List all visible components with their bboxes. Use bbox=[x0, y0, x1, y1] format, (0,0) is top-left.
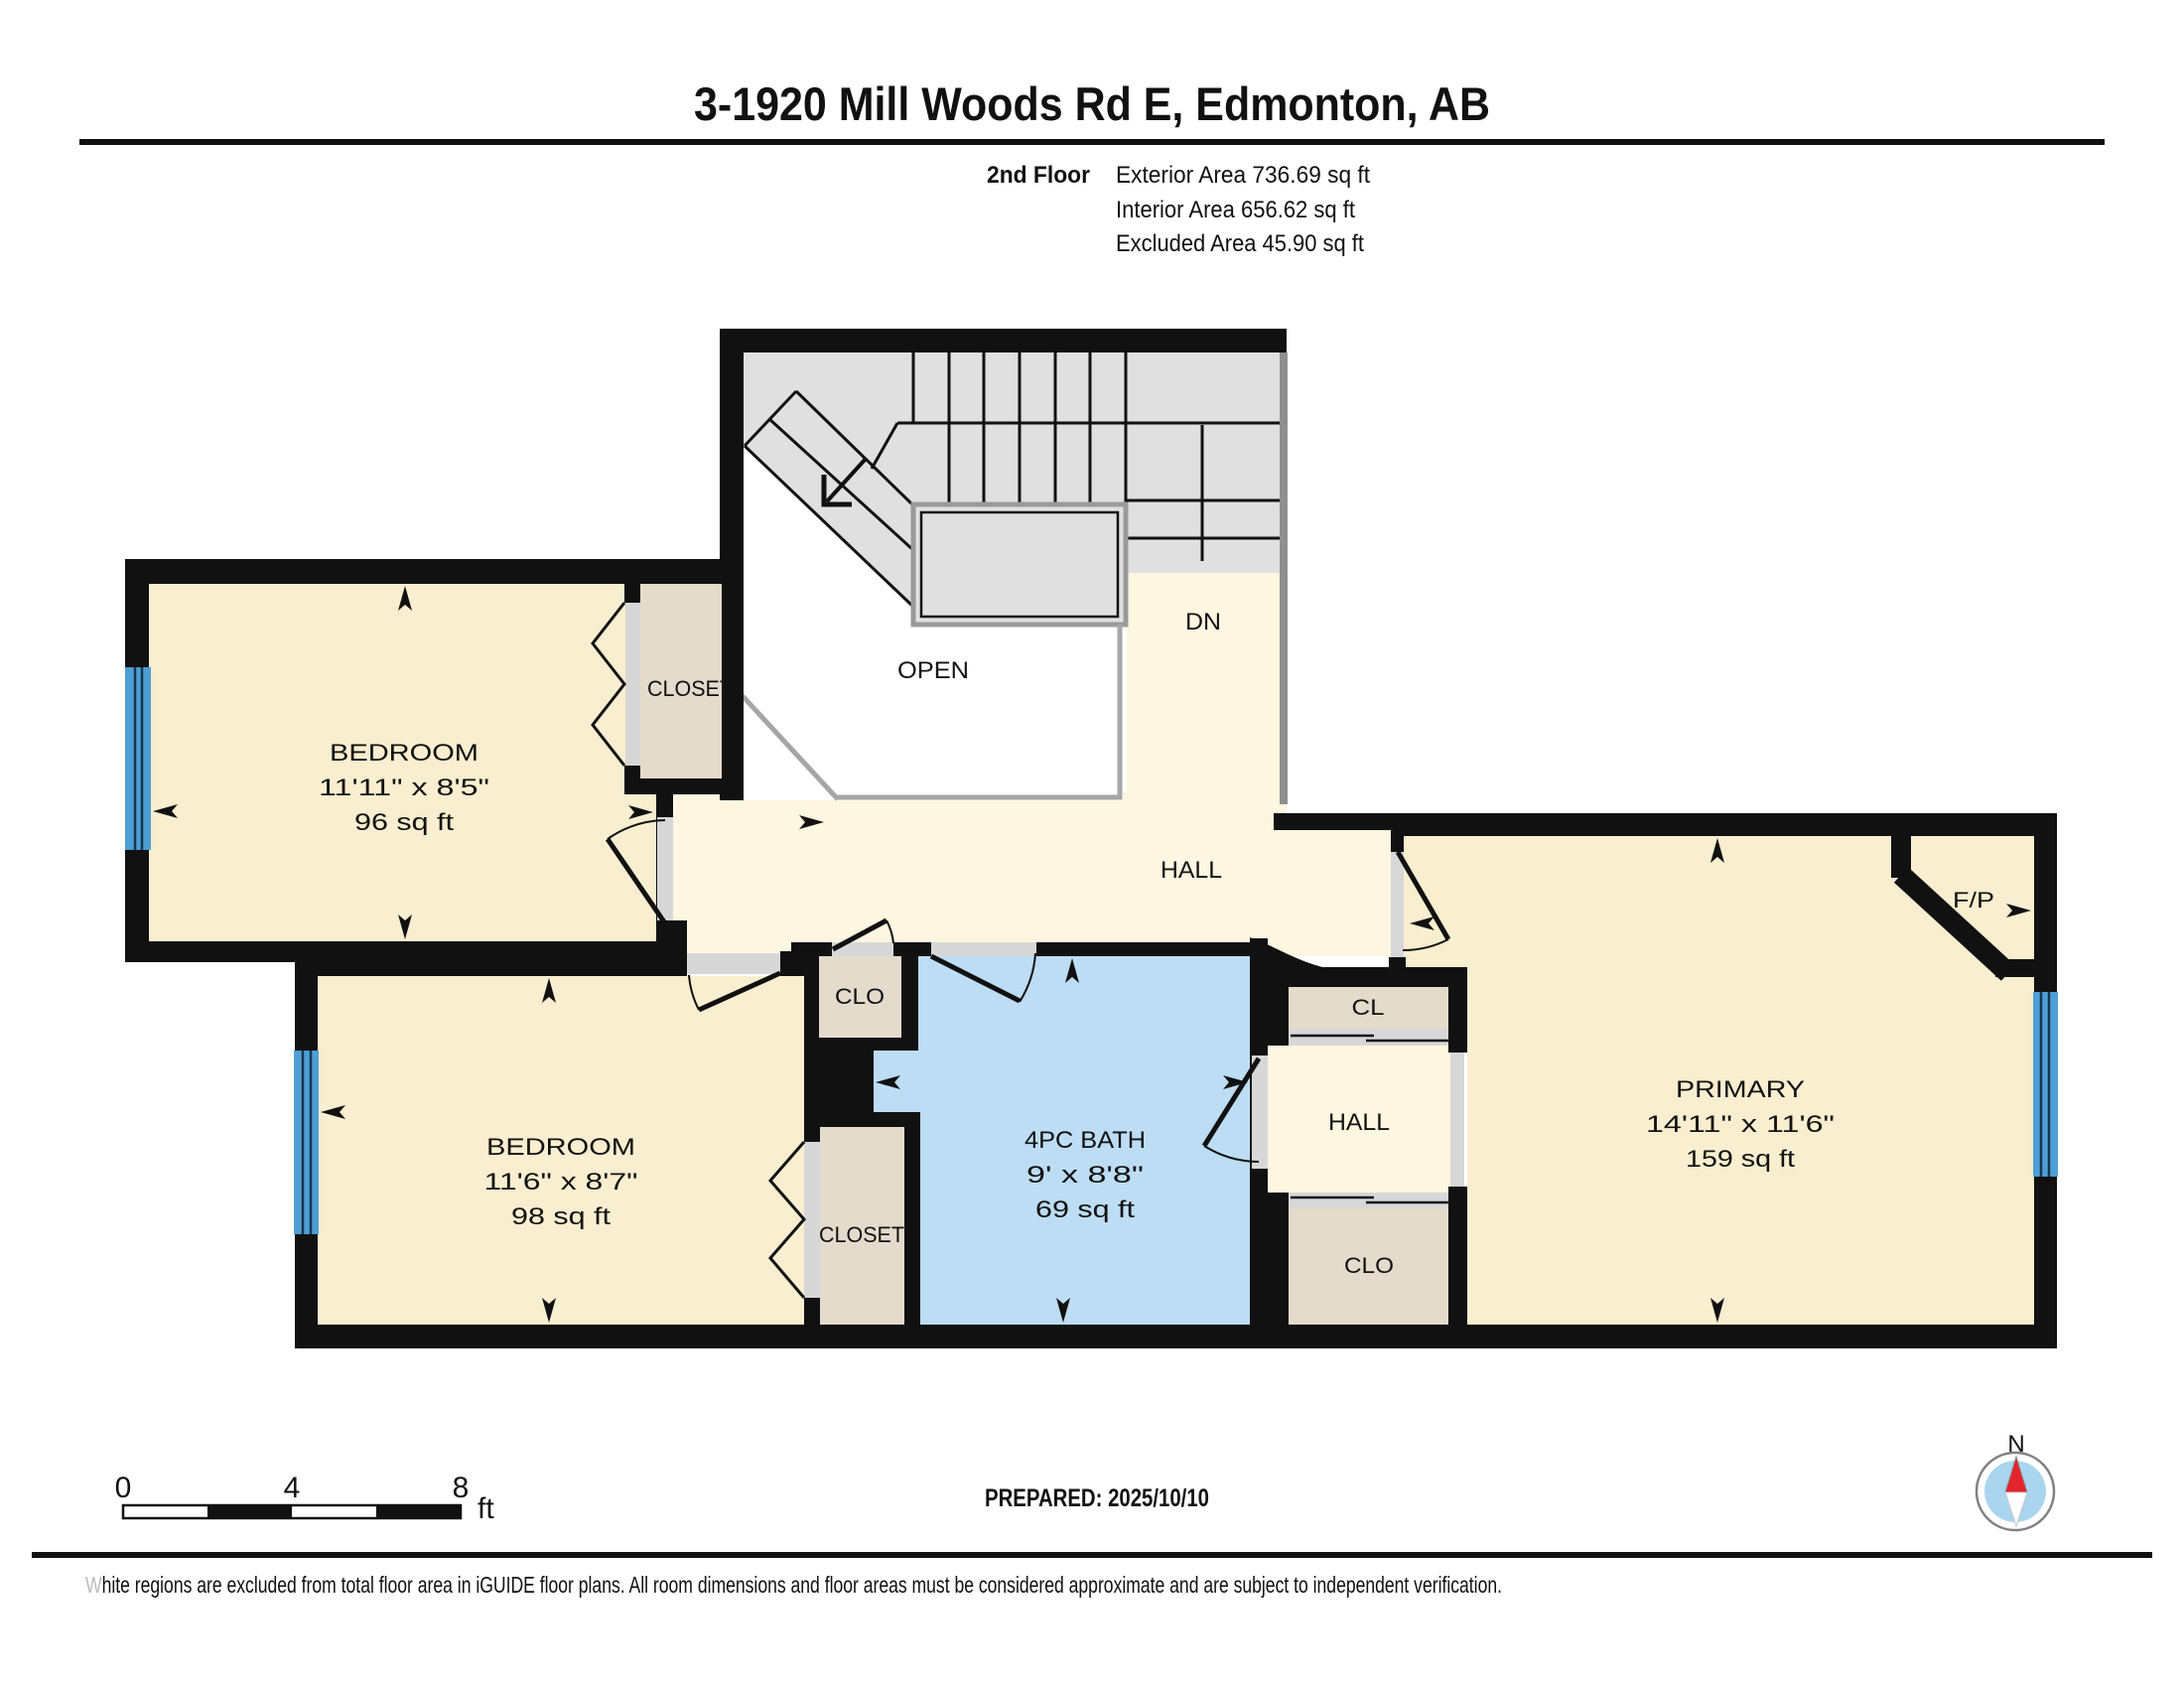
svg-text:N: N bbox=[2007, 1431, 2024, 1458]
svg-text:BEDROOM: BEDROOM bbox=[330, 740, 478, 767]
svg-text:CLO: CLO bbox=[1344, 1253, 1394, 1278]
svg-text:CLOSET: CLOSET bbox=[819, 1222, 904, 1247]
svg-text:9' x 8'8": 9' x 8'8" bbox=[1026, 1162, 1144, 1189]
svg-text:Interior Area 656.62 sq ft: Interior Area 656.62 sq ft bbox=[1116, 197, 1355, 223]
svg-text:11'6" x 8'7": 11'6" x 8'7" bbox=[484, 1169, 638, 1196]
svg-text:Excluded Area 45.90 sq ft: Excluded Area 45.90 sq ft bbox=[1116, 230, 1364, 257]
svg-text:2nd Floor: 2nd Floor bbox=[987, 162, 1090, 189]
svg-text:11'11" x 8'5": 11'11" x 8'5" bbox=[319, 774, 489, 801]
svg-text:CLOSET: CLOSET bbox=[647, 676, 733, 701]
svg-text:HALL: HALL bbox=[1328, 1109, 1390, 1136]
svg-text:3-1920 Mill Woods Rd E, Edmont: 3-1920 Mill Woods Rd E, Edmonton, AB bbox=[694, 77, 1490, 130]
svg-text:PRIMARY: PRIMARY bbox=[1676, 1076, 1805, 1103]
svg-text:Exterior Area 736.69 sq ft: Exterior Area 736.69 sq ft bbox=[1116, 162, 1370, 189]
svg-text:96 sq ft: 96 sq ft bbox=[354, 809, 454, 836]
svg-text:98 sq ft: 98 sq ft bbox=[511, 1203, 611, 1230]
svg-text:PREPARED: 2025/10/10: PREPARED: 2025/10/10 bbox=[985, 1484, 1209, 1512]
svg-text:White regions are excluded fro: White regions are excluded from total fl… bbox=[85, 1572, 1502, 1598]
svg-text:8: 8 bbox=[453, 1472, 470, 1504]
svg-text:HALL: HALL bbox=[1160, 857, 1222, 884]
svg-text:4: 4 bbox=[284, 1472, 301, 1504]
svg-text:CL: CL bbox=[1352, 995, 1385, 1020]
svg-text:F/P: F/P bbox=[1953, 888, 1994, 913]
svg-text:BEDROOM: BEDROOM bbox=[486, 1134, 635, 1161]
svg-text:CLO: CLO bbox=[835, 984, 885, 1009]
svg-text:DN: DN bbox=[1185, 609, 1221, 635]
svg-text:ft: ft bbox=[478, 1492, 494, 1525]
svg-text:0: 0 bbox=[115, 1472, 132, 1504]
svg-text:OPEN: OPEN bbox=[897, 657, 969, 684]
svg-text:14'11" x 11'6": 14'11" x 11'6" bbox=[1646, 1111, 1835, 1138]
svg-text:4PC BATH: 4PC BATH bbox=[1024, 1127, 1146, 1154]
svg-text:69 sq ft: 69 sq ft bbox=[1035, 1196, 1135, 1223]
svg-text:159 sq ft: 159 sq ft bbox=[1686, 1146, 1795, 1173]
